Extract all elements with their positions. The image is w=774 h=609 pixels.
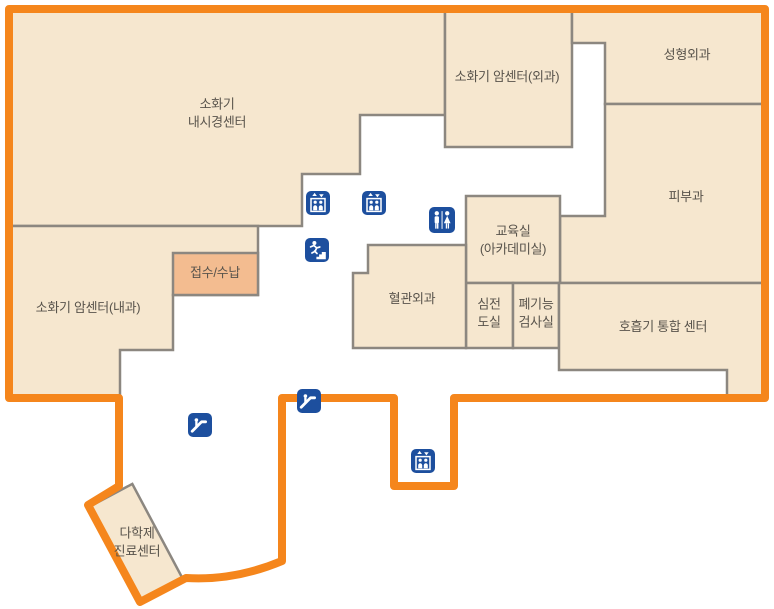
- elevator-icon: [411, 449, 435, 473]
- room-shape-pulmonary-test-room: [513, 283, 559, 348]
- room-shape-cancer-center-surgery: [445, 9, 572, 147]
- floor-map: 소화기 내시경센터 소화기 암센터(외과) 성형외과 피부과 교육실 (아카데미…: [0, 0, 774, 609]
- floor-plan-shapes: [0, 0, 774, 609]
- room-shape-dermatology: [560, 104, 765, 283]
- room-shape-education-room: [466, 196, 560, 283]
- room-shape-plastic-surgery: [572, 9, 765, 104]
- escalator-icon: [297, 389, 321, 413]
- room-shape-vascular-surgery: [353, 245, 466, 348]
- elevator-icon: [306, 191, 330, 215]
- stairs-icon: [305, 238, 329, 262]
- room-shape-ecg-room: [466, 283, 513, 348]
- room-shape-reception: [173, 253, 258, 295]
- escalator-icon: [188, 413, 212, 437]
- elevator-icon: [362, 191, 386, 215]
- restroom-icon: [429, 207, 455, 233]
- room-shape-respiratory-center: [559, 283, 765, 399]
